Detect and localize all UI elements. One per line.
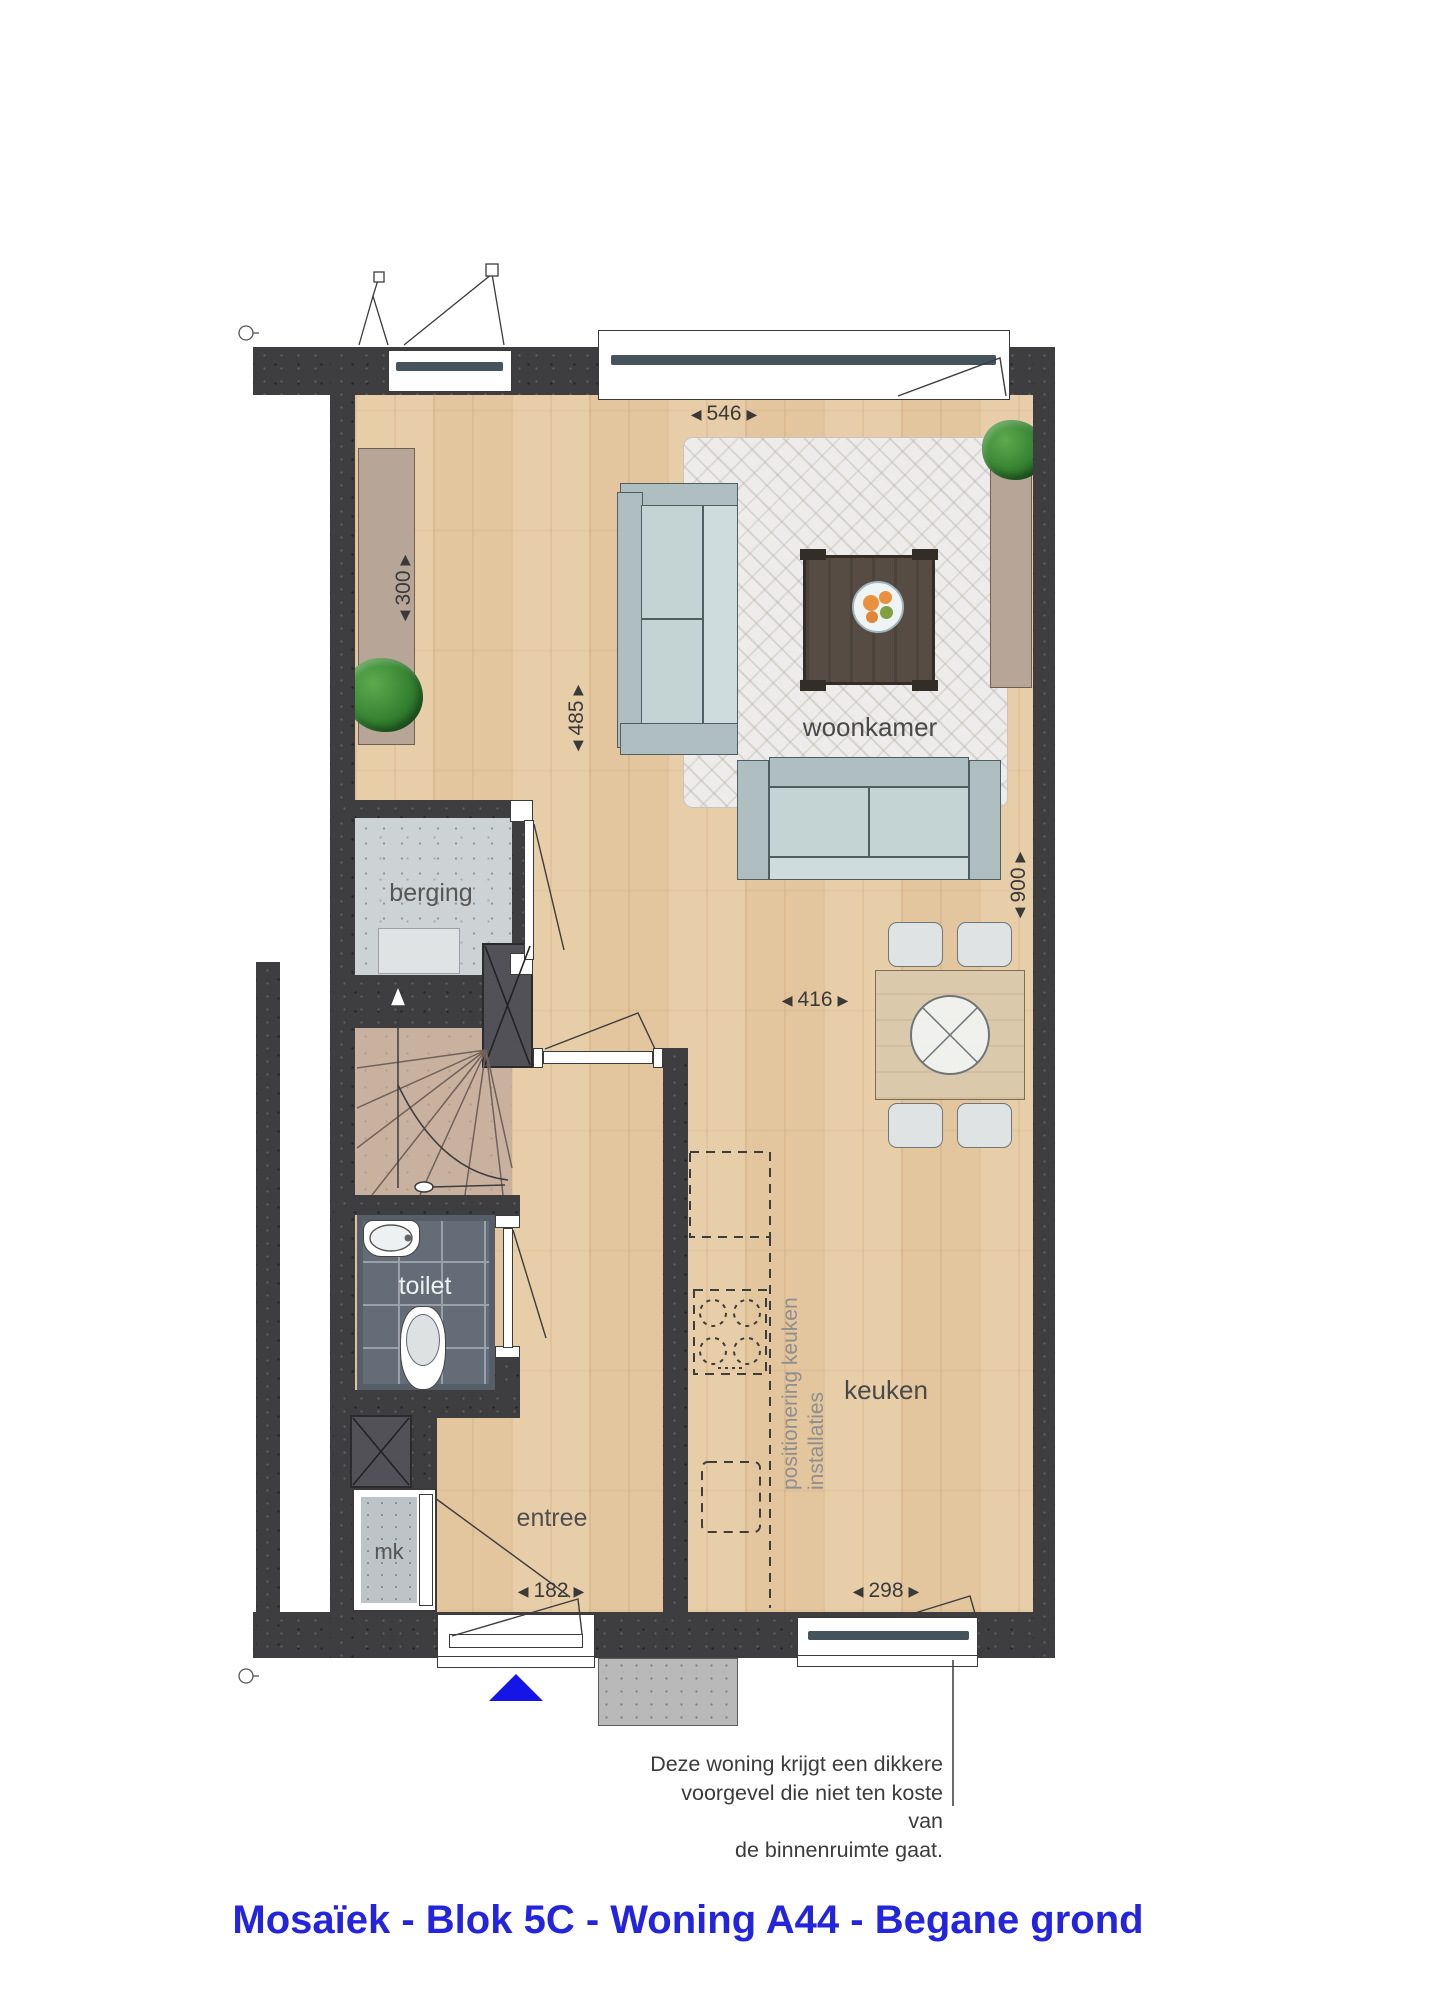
- dimension-top-window: ◀ 546 ▶: [644, 402, 804, 426]
- toilet-seat: [406, 1314, 440, 1366]
- sofa-bottom-back: [769, 757, 969, 787]
- sofa-bottom-armrest-right: [969, 760, 1001, 880]
- right-wall: [1033, 347, 1055, 1658]
- sofa-bottom-armrest-left: [737, 760, 769, 880]
- dimension-dining-depth: ◀ 900 ▶: [1007, 805, 1031, 965]
- arrow-left-icon: ◀: [518, 1584, 529, 1598]
- berging-top-wall: [333, 800, 513, 818]
- toilet-door-leaf: [503, 1228, 513, 1348]
- fruit-orange: [863, 595, 879, 611]
- facade-note-line-3: de binnenruimte gaat.: [643, 1836, 943, 1865]
- facade-note-line-2: voorgevel die niet ten koste van: [643, 1779, 943, 1836]
- label-berging: berging: [351, 879, 511, 908]
- left-outer-leaf: [256, 962, 280, 1658]
- berging-bottom-wall: [333, 975, 483, 1028]
- dimension-value: 416: [797, 988, 832, 1012]
- dining-chair: [957, 1103, 1012, 1148]
- window-top-right: [598, 330, 1010, 400]
- toilet-bottom-wall: [333, 1390, 520, 1418]
- label-meterkast: mk: [359, 1539, 419, 1565]
- plant-left: [345, 658, 423, 732]
- fruit-green: [880, 606, 893, 619]
- dimension-kitchen-width: ◀ 416 ▶: [735, 988, 895, 1012]
- hall-door-leaf: [543, 1051, 653, 1064]
- window-glazing: [808, 1631, 969, 1640]
- arrow-right-icon: ▶: [747, 407, 758, 421]
- entrance-arrow: [489, 1674, 543, 1701]
- sofa-left-back: [617, 492, 643, 748]
- dimension-value: 900: [1007, 867, 1031, 902]
- label-entree: entree: [472, 1504, 632, 1533]
- meterkast-door: [419, 1494, 433, 1606]
- arrow-up-icon: ▶: [397, 555, 411, 566]
- hall-door-jamb: [653, 1048, 663, 1068]
- arrow-left-icon: ◀: [853, 1584, 864, 1598]
- sofa-left-cushion-1: [641, 505, 703, 619]
- kitchen-window-frame: [797, 1617, 978, 1657]
- hall-door-jamb: [533, 1048, 543, 1068]
- arrow-up-icon: ▶: [570, 685, 584, 696]
- facade-note-line-1: Deze woning krijgt een dikkere: [643, 1750, 943, 1779]
- kitchen-note-line-2: installaties: [804, 1280, 830, 1490]
- fruit-orange: [879, 591, 892, 604]
- kitchen-installation-note: positionering keuken installaties: [778, 1280, 834, 1490]
- arrow-left-icon: ◀: [782, 993, 793, 1007]
- arrow-down-icon: ◀: [570, 741, 584, 752]
- floor-plan-canvas: woonkamer berging toilet entree keuken m…: [0, 0, 1447, 2008]
- drawing-title: Mosaïek - Blok 5C - Woning A44 - Begane …: [38, 1898, 1338, 1943]
- arrow-right-icon: ▶: [838, 993, 849, 1007]
- coffee-table-corner: [800, 549, 826, 560]
- dimension-value: 298: [868, 1579, 903, 1603]
- toilet-top-wall: [333, 1195, 520, 1215]
- dining-chair: [888, 922, 943, 967]
- sideboard-right: [990, 462, 1032, 688]
- window-glazing: [611, 355, 996, 365]
- arrow-right-icon: ▶: [574, 1584, 585, 1598]
- coffee-table-corner: [912, 549, 938, 560]
- dining-chair: [957, 922, 1012, 967]
- sofa-left-cushion-2: [641, 619, 703, 734]
- dimension-value: 300: [392, 570, 416, 605]
- dimension-left-depth: ◀ 300 ▶: [392, 508, 416, 668]
- berging-door-jamb: [510, 800, 533, 822]
- window-glazing: [396, 362, 503, 371]
- sofa-left-front-edge: [703, 505, 738, 734]
- toilet-right-wall: [495, 1358, 520, 1390]
- berging-door-leaf: [524, 820, 534, 960]
- dining-chair: [888, 1103, 943, 1148]
- kitchen-note-line-1: positionering keuken: [778, 1280, 804, 1490]
- arrow-down-icon: ◀: [1012, 908, 1026, 919]
- front-door-sill: [437, 1656, 595, 1668]
- kitchen-window-sill: [797, 1655, 978, 1667]
- arrow-down-icon: ◀: [397, 611, 411, 622]
- entry-pavement: [598, 1658, 738, 1726]
- arrow-left-icon: ◀: [691, 407, 702, 421]
- toilet-sink: [363, 1220, 420, 1257]
- dimension-value: 485: [565, 700, 589, 735]
- front-door-leaf: [449, 1634, 583, 1648]
- dining-table-lamp: [910, 995, 990, 1075]
- sofa-bottom-front-edge: [769, 857, 969, 880]
- sofa-bottom-cushion-2: [869, 787, 969, 857]
- fruit-plate: [852, 581, 904, 633]
- entree-keuken-wall: [663, 1048, 688, 1612]
- dimension-value: 546: [706, 402, 741, 426]
- coffee-table-corner: [912, 680, 938, 691]
- berging-doormat: [378, 928, 460, 974]
- sofa-bottom-cushion-1: [769, 787, 869, 857]
- duct-shaft-2: [350, 1415, 412, 1488]
- arrow-right-icon: ▶: [909, 1584, 920, 1598]
- dimension-front-door: ◀ 182 ▶: [471, 1579, 631, 1603]
- dimension-kitchen-window: ◀ 298 ▶: [806, 1579, 966, 1603]
- sofa-left-armrest-bottom: [620, 723, 738, 755]
- dimension-living-depth: ◀ 485 ▶: [565, 638, 589, 798]
- label-toilet: toilet: [365, 1272, 485, 1301]
- coffee-table-corner: [800, 680, 826, 691]
- fruit-orange: [866, 611, 878, 623]
- toilet-door-jamb: [495, 1215, 520, 1228]
- facade-note: Deze woning krijgt een dikkere voorgevel…: [643, 1750, 943, 1864]
- arrow-up-icon: ▶: [1012, 852, 1026, 863]
- label-woonkamer: woonkamer: [770, 712, 970, 743]
- dimension-value: 182: [533, 1579, 568, 1603]
- window-top-left: [388, 350, 512, 392]
